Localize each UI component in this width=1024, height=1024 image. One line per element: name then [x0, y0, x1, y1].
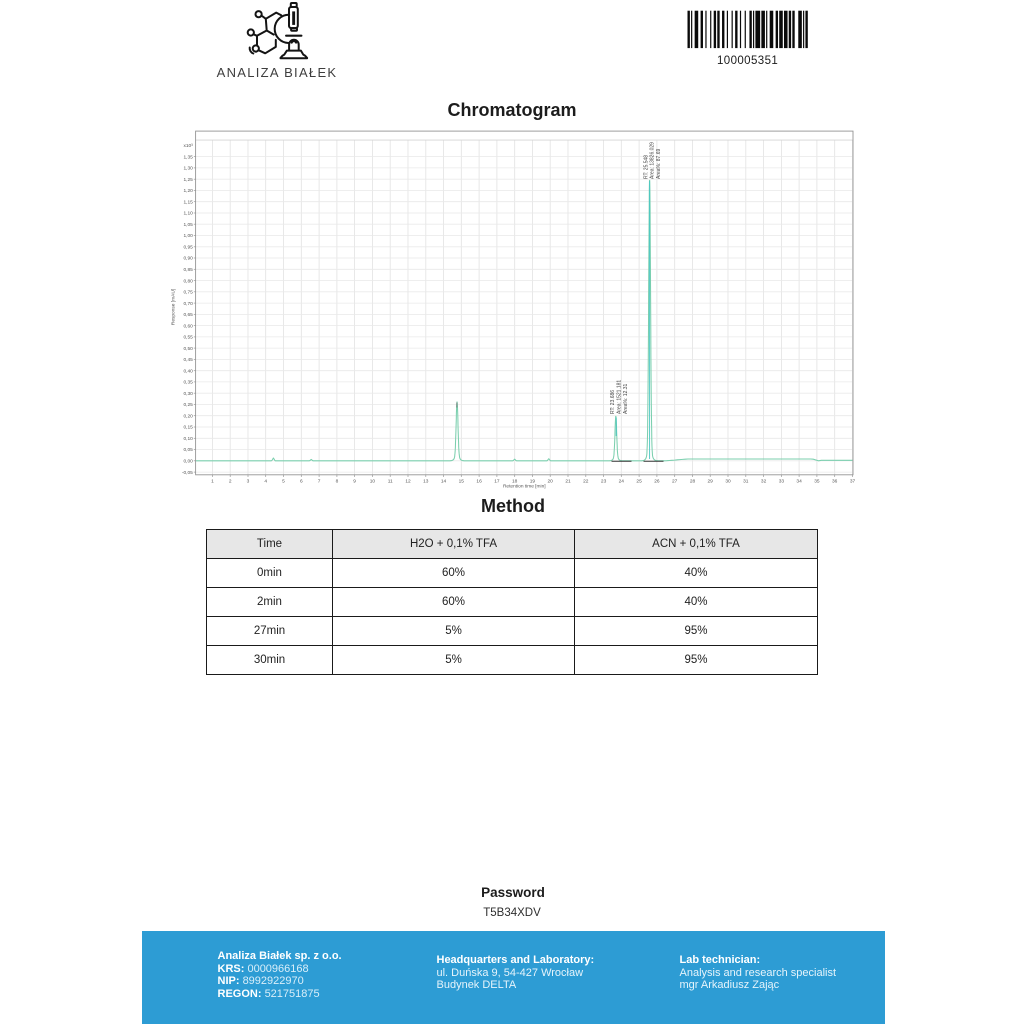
svg-text:24: 24 — [619, 478, 625, 484]
svg-text:0,05: 0,05 — [183, 447, 193, 453]
svg-text:3: 3 — [247, 478, 250, 484]
svg-text:0,25: 0,25 — [183, 402, 193, 408]
svg-text:14: 14 — [441, 478, 447, 484]
svg-text:0,10: 0,10 — [183, 436, 193, 442]
svg-text:1,05: 1,05 — [183, 222, 193, 228]
svg-text:21: 21 — [565, 478, 571, 484]
svg-text:1,00: 1,00 — [183, 233, 193, 239]
svg-text:1,25: 1,25 — [183, 177, 193, 183]
svg-text:33: 33 — [779, 478, 785, 484]
svg-text:0,35: 0,35 — [183, 380, 193, 386]
svg-text:2: 2 — [229, 478, 232, 484]
svg-text:RT: 25.548: RT: 25.548 — [643, 155, 649, 179]
svg-text:0,50: 0,50 — [183, 346, 193, 352]
svg-text:23: 23 — [601, 478, 607, 484]
svg-text:0,85: 0,85 — [183, 267, 193, 273]
svg-text:20: 20 — [548, 478, 554, 484]
svg-text:10: 10 — [370, 478, 376, 484]
svg-text:100005351: 100005351 — [717, 55, 778, 67]
svg-text:37: 37 — [850, 478, 856, 484]
svg-text:13: 13 — [423, 478, 429, 484]
svg-text:32: 32 — [761, 478, 767, 484]
svg-text:1,20: 1,20 — [183, 188, 193, 194]
svg-text:0,55: 0,55 — [183, 335, 193, 341]
svg-text:1: 1 — [211, 478, 214, 484]
svg-text:0,75: 0,75 — [183, 290, 193, 296]
svg-text:19: 19 — [530, 478, 536, 484]
svg-text:Area%: 87.69: Area%: 87.69 — [656, 148, 662, 179]
svg-text:1,15: 1,15 — [183, 199, 193, 205]
svg-text:7: 7 — [318, 478, 321, 484]
svg-text:29: 29 — [708, 478, 714, 484]
svg-text:0,45: 0,45 — [183, 357, 193, 363]
svg-text:Retention time [min]: Retention time [min] — [503, 484, 546, 490]
svg-text:27: 27 — [672, 478, 678, 484]
svg-text:x10³: x10³ — [183, 143, 193, 149]
svg-text:6: 6 — [300, 478, 303, 484]
svg-text:0,40: 0,40 — [183, 368, 193, 374]
svg-text:36: 36 — [832, 478, 838, 484]
svg-text:8: 8 — [336, 478, 339, 484]
svg-text:0,30: 0,30 — [183, 391, 193, 397]
svg-text:30: 30 — [725, 478, 731, 484]
svg-text:Area%: 12.31: Area%: 12.31 — [623, 383, 629, 414]
svg-text:35: 35 — [814, 478, 820, 484]
svg-text:11: 11 — [388, 478, 393, 484]
svg-text:15: 15 — [459, 478, 465, 484]
svg-text:0,60: 0,60 — [183, 323, 193, 329]
svg-text:0,80: 0,80 — [183, 278, 193, 284]
svg-text:0,65: 0,65 — [183, 312, 193, 318]
svg-text:RT: 23.686: RT: 23.686 — [610, 390, 616, 414]
svg-text:Response [mAU]: Response [mAU] — [171, 289, 177, 325]
svg-text:0,95: 0,95 — [183, 245, 193, 251]
svg-text:0,15: 0,15 — [183, 425, 193, 431]
svg-text:16: 16 — [476, 478, 482, 484]
svg-text:1,30: 1,30 — [183, 166, 193, 172]
svg-text:0,20: 0,20 — [183, 413, 193, 419]
svg-text:9: 9 — [353, 478, 356, 484]
svg-text:-0,05: -0,05 — [182, 470, 193, 476]
svg-text:0,90: 0,90 — [183, 256, 193, 262]
svg-text:Area: 1521.181: Area: 1521.181 — [617, 380, 623, 414]
svg-text:17: 17 — [494, 478, 500, 484]
svg-text:Area: 13826.029: Area: 13826.029 — [650, 142, 656, 179]
svg-text:18: 18 — [512, 478, 518, 484]
svg-text:34: 34 — [796, 478, 802, 484]
svg-text:1,35: 1,35 — [183, 154, 193, 160]
svg-text:22: 22 — [583, 478, 589, 484]
svg-text:0,70: 0,70 — [183, 301, 193, 307]
svg-text:5: 5 — [282, 478, 285, 484]
svg-text:28: 28 — [690, 478, 696, 484]
svg-text:25: 25 — [636, 478, 642, 484]
svg-text:4: 4 — [264, 478, 267, 484]
svg-text:0,00: 0,00 — [183, 459, 193, 465]
svg-text:12: 12 — [405, 478, 411, 484]
svg-text:31: 31 — [743, 478, 749, 484]
svg-text:1,10: 1,10 — [183, 211, 193, 217]
svg-text:26: 26 — [654, 478, 660, 484]
